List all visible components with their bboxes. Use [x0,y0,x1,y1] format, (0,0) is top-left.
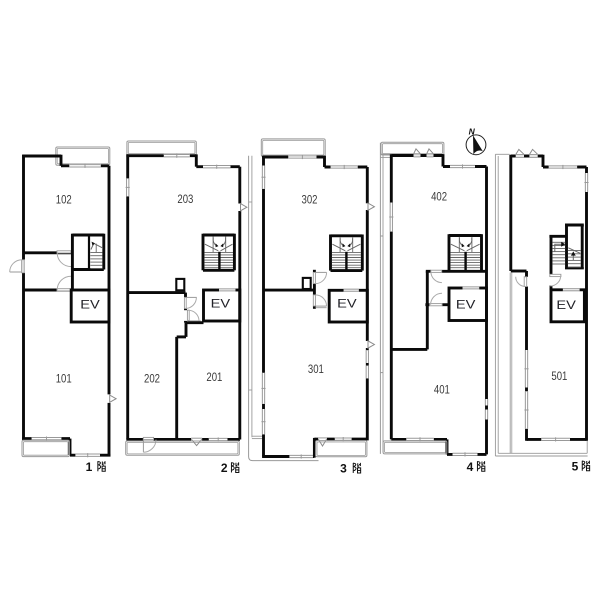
svg-text:5: 5 [572,459,579,473]
svg-text:201: 201 [206,370,222,384]
svg-text:EV: EV [337,296,357,310]
svg-text:EV: EV [456,297,476,311]
svg-text:3: 3 [340,462,347,476]
svg-text:101: 101 [56,372,72,386]
svg-text:501: 501 [551,369,567,383]
svg-text:401: 401 [434,383,450,397]
svg-text:EV: EV [556,298,576,312]
svg-text:102: 102 [56,193,72,207]
svg-text:N: N [469,126,476,136]
svg-text:301: 301 [308,362,324,376]
svg-text:EV: EV [80,298,100,312]
svg-text:302: 302 [302,192,318,206]
svg-text:203: 203 [177,192,193,206]
svg-text:202: 202 [144,371,160,385]
svg-text:4: 4 [467,460,474,474]
svg-text:402: 402 [431,190,447,204]
svg-text:EV: EV [211,296,231,310]
svg-text:2: 2 [221,461,228,475]
svg-text:1: 1 [86,460,93,474]
